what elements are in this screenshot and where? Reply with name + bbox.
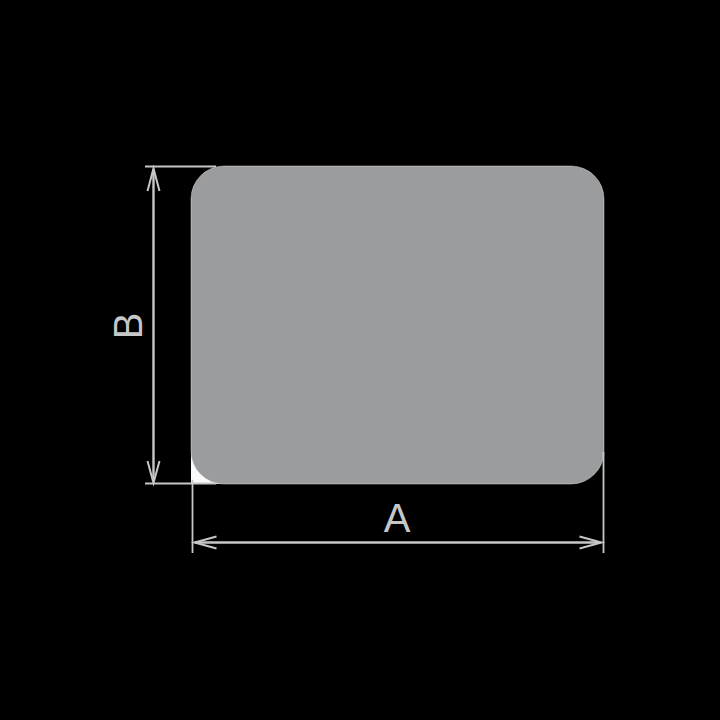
profile-dimension-diagram: B A: [0, 0, 720, 720]
dimension-label-b: B: [106, 313, 150, 340]
profile-shape: [191, 166, 604, 484]
diagram-canvas: B A: [0, 0, 720, 720]
dimension-label-a: A: [384, 496, 411, 540]
